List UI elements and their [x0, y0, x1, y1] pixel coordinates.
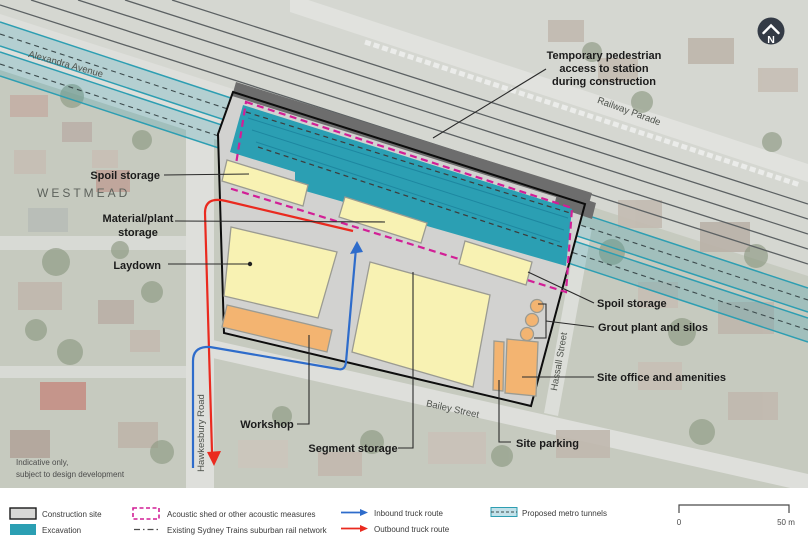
- north-letter: N: [767, 34, 775, 46]
- legend-item-tunnels: Proposed metro tunnels: [491, 508, 607, 519]
- note-line1: Indicative only,: [16, 458, 68, 467]
- label-pedestrian-access-line1: Temporary pedestrian: [547, 50, 662, 62]
- label-site-parking: Site parking: [516, 438, 579, 450]
- label-grout-plant: Grout plant and silos: [598, 322, 708, 334]
- legend-background: [0, 488, 808, 550]
- construction-site-map-figure: Temporary pedestrian access to station d…: [0, 0, 808, 550]
- label-material-storage-line2: storage: [118, 227, 158, 239]
- legend-tunnels-label: Proposed metro tunnels: [522, 509, 607, 518]
- construction-site-swatch-icon: [10, 508, 36, 519]
- label-spoil-storage-left: Spoil storage: [90, 170, 160, 182]
- suburb-label-westmead: WESTMEAD: [37, 186, 130, 200]
- legend-excavation-label: Excavation: [42, 526, 81, 535]
- label-site-office: Site office and amenities: [597, 372, 726, 384]
- zone-site-office: [505, 339, 538, 396]
- note-line2: subject to design development: [16, 470, 125, 479]
- label-laydown: Laydown: [113, 260, 161, 272]
- road-cross-street-2: [0, 366, 186, 378]
- site-map-svg: Temporary pedestrian access to station d…: [0, 0, 808, 550]
- legend-item-excavation: Excavation: [10, 524, 81, 535]
- legend-construction-site-label: Construction site: [42, 510, 102, 519]
- label-workshop: Workshop: [240, 419, 294, 431]
- legend-outbound-label: Outbound truck route: [374, 525, 450, 534]
- road-cross-street-1: [0, 236, 186, 250]
- leader-laydown-dot: [248, 262, 252, 266]
- acoustic-swatch-icon: [133, 508, 159, 519]
- legend-acoustic-label: Acoustic shed or other acoustic measures: [167, 510, 316, 519]
- legend-inbound-label: Inbound truck route: [374, 509, 443, 518]
- legend-rail-network-label: Existing Sydney Trains suburban rail net…: [167, 526, 328, 535]
- label-pedestrian-access-line3: during construction: [552, 76, 656, 88]
- label-segment-storage: Segment storage: [308, 443, 397, 455]
- legend: Construction site Excavation Acoustic sh…: [0, 488, 808, 550]
- scale-start-label: 0: [677, 518, 682, 527]
- scale-end-label: 50 m: [777, 518, 795, 527]
- street-hawkesbury-road: Hawkesbury Road: [196, 394, 207, 472]
- label-spoil-storage-right: Spoil storage: [597, 298, 667, 310]
- label-pedestrian-access-line2: access to station: [559, 63, 649, 75]
- excavation-swatch-icon: [10, 524, 36, 535]
- label-material-storage-line1: Material/plant: [103, 213, 174, 225]
- legend-item-construction-site: Construction site: [10, 508, 102, 519]
